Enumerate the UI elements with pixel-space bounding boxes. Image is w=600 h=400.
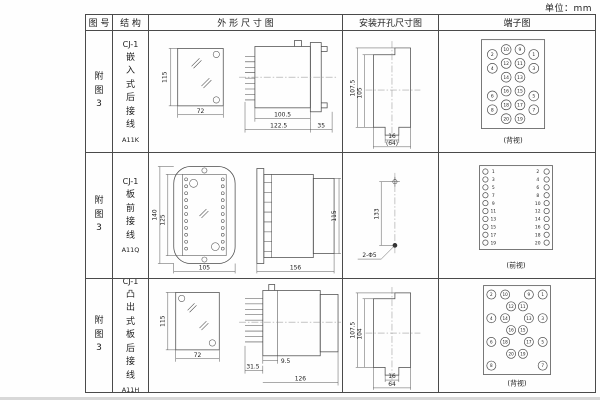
dim-label: 133: [374, 208, 380, 219]
terminal-number: 12: [508, 303, 514, 308]
terminal-circle: [482, 192, 487, 197]
terminal-number: 18: [534, 232, 540, 238]
terminal-number: 4: [536, 177, 539, 183]
model-text: CJ-1: [123, 279, 139, 286]
row1-outline-cell: 115 72 100.5 122.5 35: [149, 31, 343, 153]
mounting-diagram-a11h: 107.5 104 16 64: [344, 280, 438, 392]
terminal-number: 19: [490, 240, 496, 246]
terminal-number: 3: [541, 315, 544, 320]
dim-label: 100.5: [274, 111, 291, 118]
document-page: 单位：mm 图 号 结 构 外 形 尺 寸 图 安装开孔尺寸图 端子图 附图3 …: [0, 0, 600, 400]
dim-label: 16: [388, 134, 396, 140]
dim-label: 115: [331, 210, 338, 222]
structure-text: 凸出式板后接线: [126, 289, 135, 384]
terminal-circle: [543, 192, 548, 197]
dim-label: 140: [151, 209, 158, 221]
terminal-circle: [543, 176, 548, 181]
terminal-number: 8: [536, 192, 539, 198]
outline-diagram-a11k: 115 72 100.5 122.5 35: [150, 32, 342, 152]
view-label: (前视): [506, 260, 526, 269]
outline-diagram-a11h: 115 72 9.5 31.5 126: [150, 280, 342, 392]
dim-label: 115: [161, 71, 168, 83]
terminal-circle: [543, 200, 548, 205]
terminal-number: 15: [520, 327, 526, 332]
dim-label: 126: [294, 375, 306, 382]
row3-terminal-cell: 2109112114141331615618175201987 (背视): [439, 279, 596, 393]
outline-diagram-a11q: 140 125 105 156 115: [150, 154, 342, 278]
dim-label: 72: [196, 107, 204, 114]
terminal-number: 15: [517, 88, 523, 94]
terminal-number: 16: [503, 88, 509, 94]
terminal-number: 5: [541, 339, 544, 344]
header-mounting: 安装开孔尺寸图: [343, 15, 439, 31]
terminal-circle: [543, 216, 548, 221]
terminal-number: 10: [534, 200, 540, 206]
terminal-number: 1: [491, 169, 494, 175]
terminal-number: 7: [491, 192, 494, 198]
terminal-number: 20: [534, 240, 540, 246]
terminal-number: 5: [532, 93, 535, 99]
code-text: A11H: [122, 386, 140, 393]
terminal-number: 1: [532, 52, 535, 58]
terminal-number: 4: [490, 65, 493, 71]
header-terminal: 端子图: [439, 15, 596, 31]
terminal-circle: [482, 208, 487, 213]
code-text: A11K: [122, 136, 139, 144]
terminal-number: 18: [503, 102, 509, 108]
structure-text: 板前接线: [126, 189, 135, 243]
dim-label: 72: [193, 351, 201, 358]
dim-label: 16: [388, 374, 396, 380]
dim-label: 35: [317, 122, 325, 129]
row2-terminal-cell: 1234567891011121314151617181920 (前视): [439, 153, 596, 279]
unit-label: 单位：mm: [545, 1, 592, 14]
terminal-number: 4: [490, 315, 493, 320]
mounting-diagram-a11k: 107.5 105 16 (64): [344, 32, 438, 152]
terminal-number: 6: [536, 185, 539, 191]
dim-label: 9.5: [280, 358, 290, 365]
dim-label: 115: [159, 315, 166, 327]
terminal-circle: [543, 239, 548, 244]
terminal-diagram-a11h: 2109112114141331615618175201987 (背视): [440, 280, 595, 392]
dim-label: 64: [388, 381, 396, 387]
terminal-number: 16: [508, 327, 514, 332]
row1-fig-no: 附图3: [86, 31, 113, 153]
row1-structure: CJ-1 嵌入式后接线 A11K: [113, 31, 149, 153]
terminal-number: 11: [520, 303, 526, 308]
terminal-circle: [482, 200, 487, 205]
dim-label: 122.5: [270, 122, 287, 129]
fig-no-text: 附图3: [95, 195, 104, 236]
row3-outline-cell: 115 72 9.5 31.5 126: [149, 279, 343, 393]
terminal-number: 13: [517, 74, 523, 80]
terminal-number: 8: [490, 363, 493, 368]
code-text: A11Q: [122, 246, 140, 254]
terminal-number: 3: [491, 177, 494, 183]
terminal-diagram-a11q: 1234567891011121314151617181920 (前视): [440, 156, 595, 276]
terminal-number: 6: [490, 339, 493, 344]
terminal-number: 12: [503, 61, 509, 67]
dim-label: 104: [357, 328, 363, 339]
terminal-number: 15: [490, 224, 496, 230]
row2-fig-no: 附图3: [86, 153, 113, 279]
model-text: CJ-1: [123, 40, 139, 49]
terminal-circle: [482, 184, 487, 189]
header-fig-no: 图 号: [86, 15, 113, 31]
dim-label: 105: [198, 264, 210, 271]
terminal-number: 6: [490, 93, 493, 99]
terminal-number: 5: [491, 185, 494, 191]
terminal-number: 10: [502, 292, 508, 297]
terminal-number: 10: [503, 47, 509, 53]
hole-callout: 2-Φ5: [362, 253, 376, 259]
terminal-number: 9: [527, 292, 530, 297]
terminal-number: 1: [541, 292, 544, 297]
row2-structure: CJ-1 板前接线 A11Q: [113, 153, 149, 279]
row2-mounting-cell: 133 2-Φ5: [343, 153, 439, 279]
fig-no-text: 附图3: [95, 315, 104, 356]
terminal-number: 17: [526, 339, 532, 344]
structure-text: 嵌入式后接线: [126, 52, 135, 133]
terminal-number: 16: [534, 224, 540, 230]
row3-mounting-cell: 107.5 104 16 64: [343, 279, 439, 393]
terminal-number: 18: [502, 339, 508, 344]
terminal-number: 14: [502, 315, 508, 320]
terminal-number: 17: [517, 102, 523, 108]
view-label: (背视): [503, 135, 523, 144]
terminal-circle: [482, 176, 487, 181]
terminal-number: 7: [541, 363, 544, 368]
terminal-number: 19: [520, 351, 526, 356]
terminal-number: 13: [526, 315, 532, 320]
dim-label: (64): [385, 140, 397, 146]
row3-structure: CJ-1 凸出式板后接线 A11H: [113, 279, 149, 393]
terminal-number: 20: [508, 351, 514, 356]
terminal-number: 9: [518, 47, 521, 53]
dim-label: 31.5: [246, 363, 259, 370]
terminal-circle: [543, 224, 548, 229]
terminal-circle: [543, 208, 548, 213]
view-label: (背视): [507, 378, 527, 387]
terminal-diagram-a11k: 2109141211314136161558181772019 (背视): [440, 33, 595, 151]
terminal-circle: [543, 168, 548, 173]
header-outline: 外 形 尺 寸 图: [149, 15, 343, 31]
terminal-number: 13: [490, 216, 496, 222]
terminal-circle: [482, 224, 487, 229]
terminal-number: 14: [503, 74, 509, 80]
row1-terminal-cell: 2109141211314136161558181772019 (背视): [439, 31, 596, 153]
row3-fig-no: 附图3: [86, 279, 113, 393]
terminal-number: 2: [536, 169, 539, 175]
terminal-number: 9: [491, 200, 494, 206]
terminal-circle: [482, 239, 487, 244]
terminal-number: 14: [534, 216, 540, 222]
terminal-circle: [482, 168, 487, 173]
terminal-number: 3: [532, 65, 535, 71]
terminal-number: 2: [490, 52, 493, 58]
terminal-number: 2: [490, 292, 493, 297]
fig-no-text: 附图3: [95, 71, 104, 112]
row1-mounting-cell: 107.5 105 16 (64): [343, 31, 439, 153]
terminal-circle: [482, 216, 487, 221]
terminal-circle: [543, 184, 548, 189]
dim-label: 105: [357, 87, 363, 98]
terminal-number: 11: [490, 208, 496, 214]
terminal-number: 7: [532, 107, 535, 113]
dim-label: 107.5: [350, 321, 356, 338]
terminal-number: 20: [503, 116, 509, 122]
dim-label: 107.5: [350, 79, 356, 96]
terminal-number: 8: [490, 107, 493, 113]
model-text: CJ-1: [123, 177, 139, 186]
dim-label: 156: [289, 264, 301, 271]
terminal-number: 19: [517, 116, 523, 122]
mounting-diagram-a11q: 133 2-Φ5: [344, 154, 438, 278]
dim-label: 125: [159, 214, 166, 226]
terminal-number: 17: [490, 232, 496, 238]
terminal-number: 11: [517, 61, 523, 67]
terminal-number: 12: [534, 208, 540, 214]
terminal-circle: [543, 232, 548, 237]
header-structure: 结 构: [113, 15, 149, 31]
row2-outline-cell: 140 125 105 156 115: [149, 153, 343, 279]
terminal-circle: [482, 232, 487, 237]
spec-table: 图 号 结 构 外 形 尺 寸 图 安装开孔尺寸图 端子图 附图3 CJ-1 嵌…: [85, 14, 596, 393]
